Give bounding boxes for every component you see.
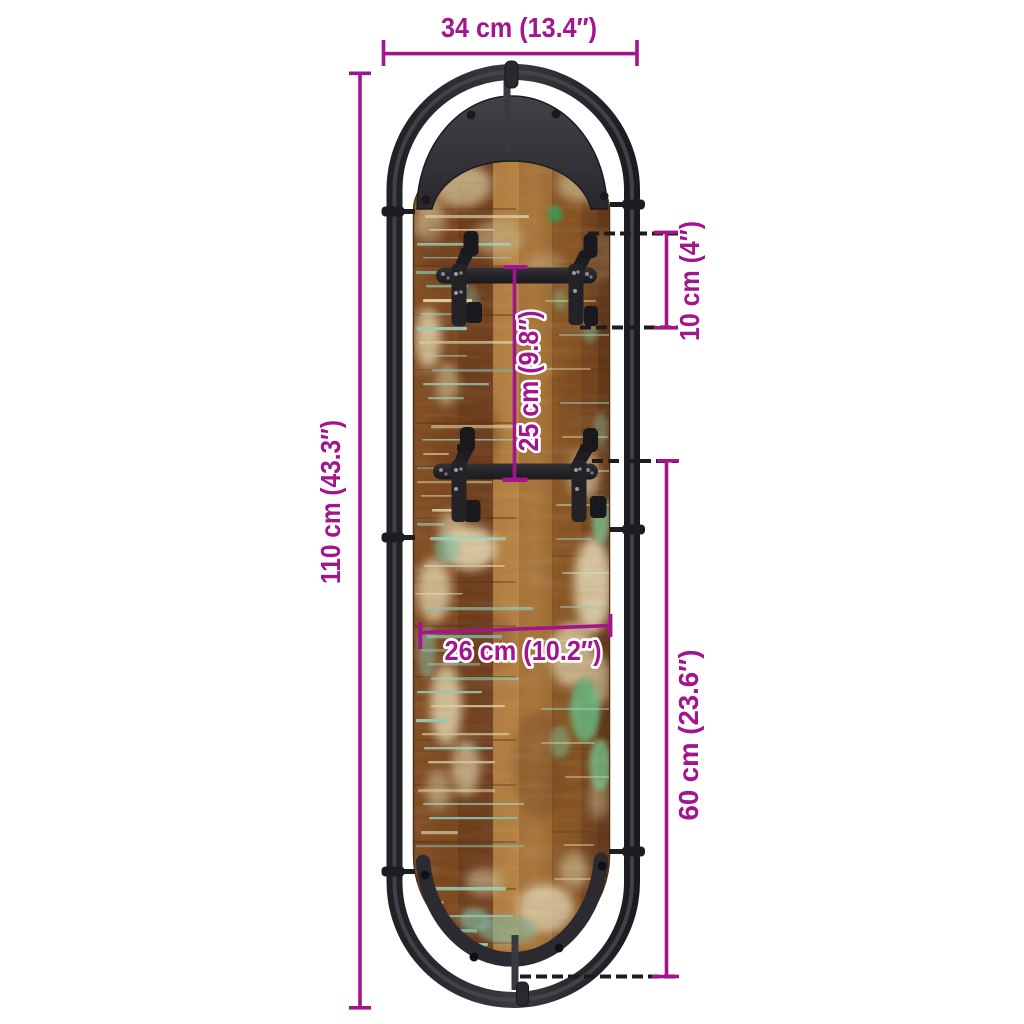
svg-text:25 cm (9.8″): 25 cm (9.8″) <box>513 311 544 452</box>
svg-text:26 cm (10.2″): 26 cm (10.2″) <box>445 635 602 666</box>
svg-text:60 cm (23.6″): 60 cm (23.6″) <box>673 650 704 821</box>
svg-text:110 cm (43.3″): 110 cm (43.3″) <box>315 420 346 584</box>
svg-text:10 cm (4″): 10 cm (4″) <box>674 221 705 341</box>
svg-text:34 cm (13.4″): 34 cm (13.4″) <box>441 12 597 43</box>
